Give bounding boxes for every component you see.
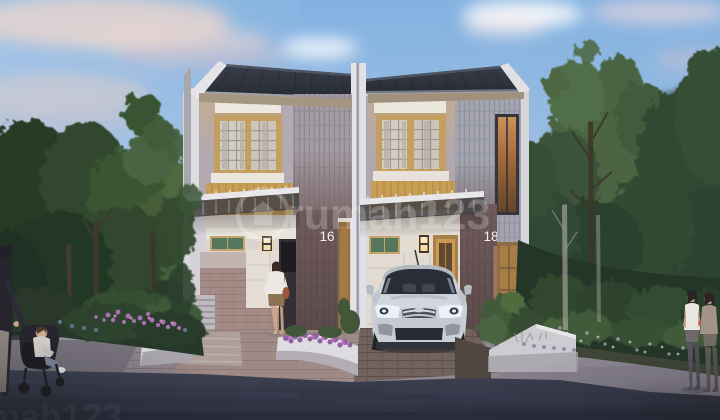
svg-text:rumah123: rumah123 (0, 396, 122, 420)
svg-text:rumah123: rumah123 (287, 191, 490, 239)
